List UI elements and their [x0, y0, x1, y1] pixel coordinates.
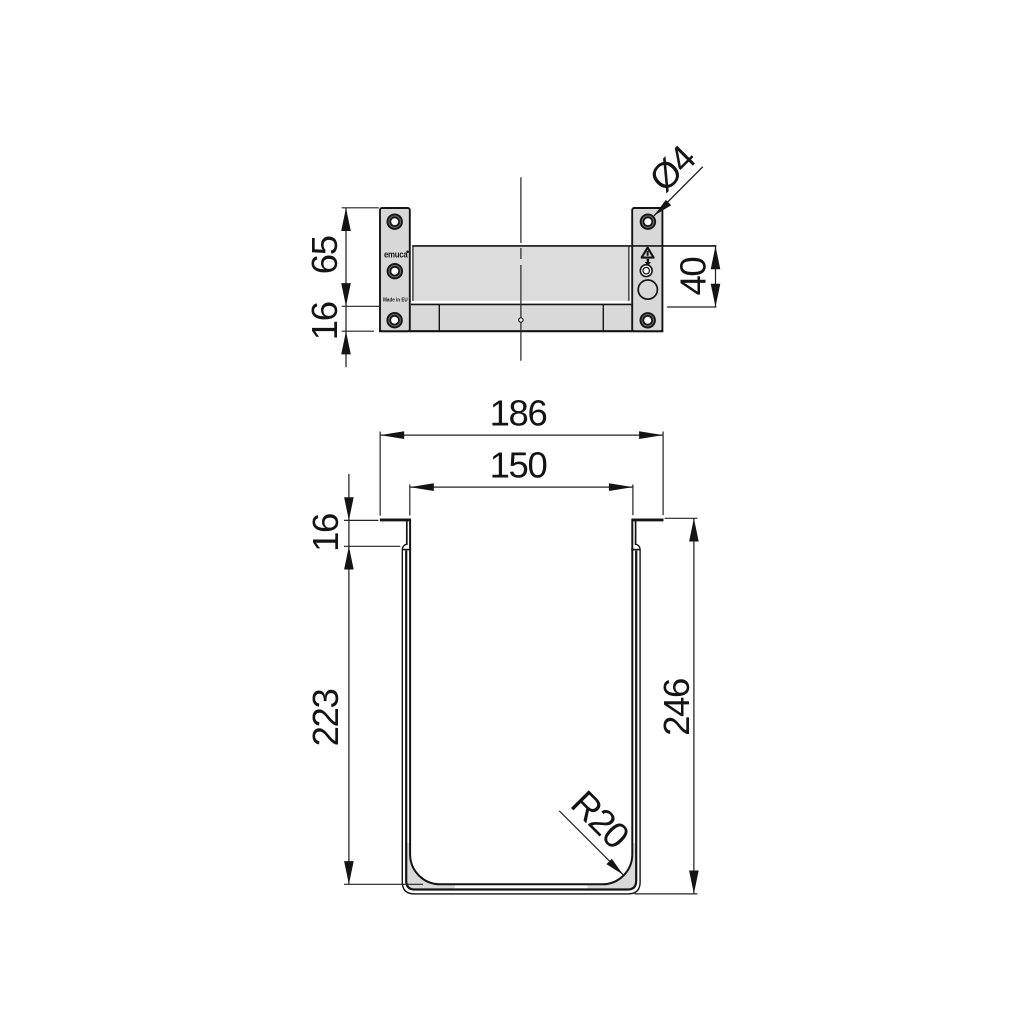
svg-text:16: 16: [304, 302, 345, 340]
svg-text:223: 223: [305, 690, 346, 747]
svg-text:246: 246: [656, 679, 697, 736]
svg-text:emuca: emuca: [384, 250, 408, 260]
svg-text:Made in EU: Made in EU: [383, 297, 408, 303]
svg-text:186: 186: [490, 393, 547, 434]
svg-text:65: 65: [304, 236, 345, 274]
svg-text:16: 16: [305, 514, 346, 552]
svg-text:150: 150: [490, 445, 547, 486]
svg-text:40: 40: [672, 258, 713, 296]
